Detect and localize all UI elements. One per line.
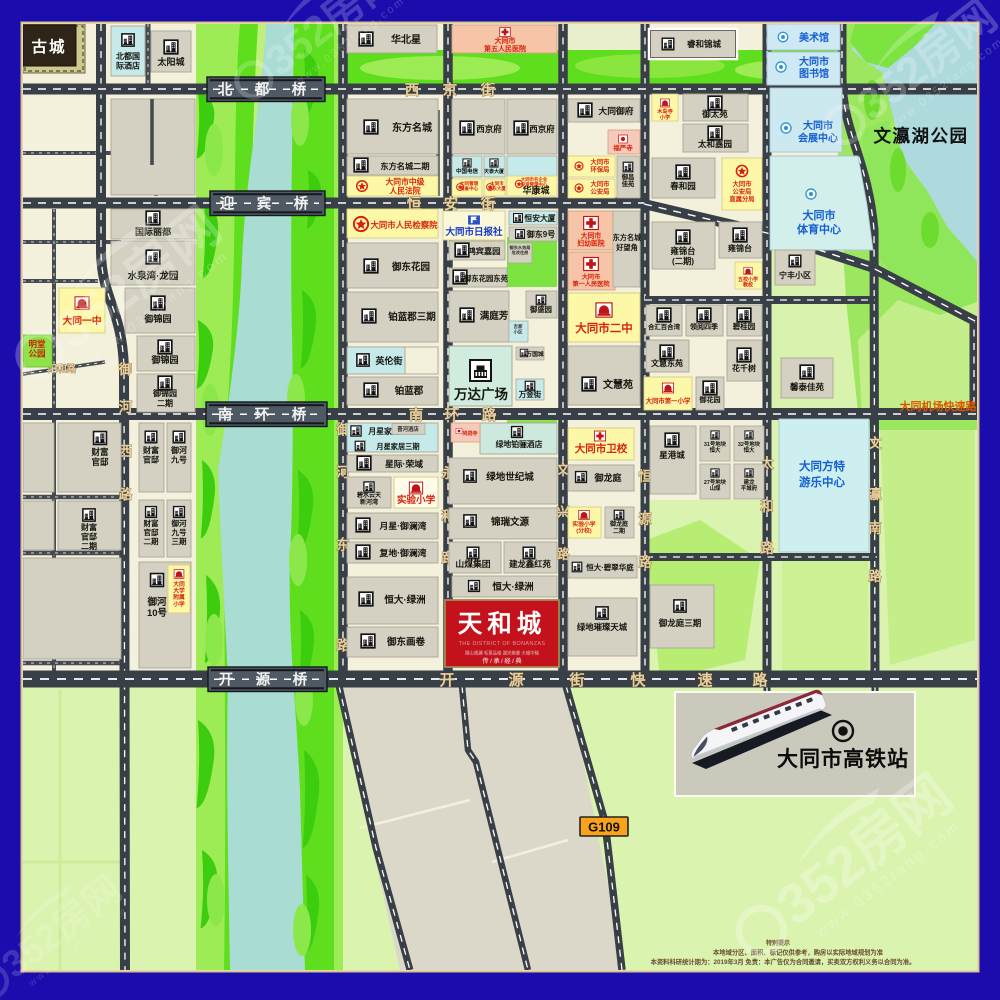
svg-text:绿地璀璨天城: 绿地璀璨天城 (577, 622, 628, 632)
svg-text:路: 路 (638, 554, 652, 570)
svg-text:二期: 二期 (144, 536, 159, 546)
svg-text:开: 开 (219, 671, 234, 688)
svg-text:文慧苑: 文慧苑 (603, 378, 633, 391)
svg-text:大同机场快速路: 大同机场快速路 (900, 399, 978, 413)
svg-text:东方名城: 东方名城 (613, 233, 643, 242)
svg-text:文瀛湖公园: 文瀛湖公园 (874, 126, 969, 146)
svg-text:大同市: 大同市 (591, 157, 611, 166)
svg-text:第五人民医院: 第五人民医院 (484, 44, 526, 53)
svg-text:公园: 公园 (28, 349, 45, 359)
svg-text:大同市: 大同市 (733, 179, 753, 188)
svg-text:西京府: 西京府 (529, 124, 555, 134)
svg-text:御河: 御河 (146, 596, 167, 608)
svg-text:妇幼医院: 妇幼医院 (576, 239, 604, 248)
svg-text:街: 街 (568, 671, 584, 689)
svg-text:二期: 二期 (157, 398, 173, 408)
svg-text:御河: 御河 (170, 445, 187, 455)
svg-text:御锦园: 御锦园 (150, 354, 178, 365)
svg-text:大同市: 大同市 (581, 231, 602, 240)
svg-text:西: 西 (405, 82, 420, 99)
svg-text:京: 京 (443, 81, 458, 99)
svg-text:和: 和 (760, 499, 774, 514)
svg-text:御锦园: 御锦园 (152, 388, 177, 398)
svg-text:恒大·绿洲: 恒大·绿洲 (384, 594, 425, 606)
svg-text:御龙庭: 御龙庭 (609, 520, 628, 528)
svg-text:本地域分区、面积、标记仅供参考，购房以实际地域规划为准: 本地域分区、面积、标记仅供参考，购房以实际地域规划为准 (712, 948, 884, 957)
svg-text:碧桂园: 碧桂园 (732, 321, 756, 331)
svg-text:阔山观澜 毛革品格 湖光美景 大城中轴: 阔山观澜 毛革品格 湖光美景 大城中轴 (465, 650, 540, 657)
svg-text:御盛园: 御盛园 (529, 305, 552, 314)
svg-text:官邸: 官邸 (81, 532, 97, 542)
svg-text:建龙: 建龙 (743, 478, 755, 486)
svg-text:开: 开 (439, 672, 454, 689)
svg-text:雍锦台: 雍锦台 (671, 246, 696, 256)
svg-text:华北星: 华北星 (391, 33, 421, 46)
svg-text:宁丰小区: 宁丰小区 (779, 270, 811, 280)
svg-text:源: 源 (638, 511, 652, 527)
svg-text:御龙庭: 御龙庭 (593, 472, 622, 483)
svg-text:迎: 迎 (220, 194, 235, 212)
svg-text:月星家居三期: 月星家居三期 (375, 442, 419, 451)
svg-text:官邸: 官邸 (91, 457, 109, 467)
svg-text:月星·御澜湾: 月星·御澜湾 (379, 520, 427, 531)
svg-text:大同市中级: 大同市中级 (386, 177, 425, 187)
svg-text:合汇百合湾: 合汇百合湾 (647, 322, 681, 331)
svg-text:花千树: 花千树 (732, 363, 756, 373)
svg-text:际酒店: 际酒店 (116, 61, 140, 71)
svg-text:大同市: 大同市 (591, 179, 611, 188)
svg-text:明堂: 明堂 (28, 339, 46, 349)
svg-text:速: 速 (697, 671, 712, 689)
svg-text:大同市日报社: 大同市日报社 (445, 226, 503, 238)
svg-text:天泰大厦: 天泰大厦 (484, 168, 505, 175)
svg-text:御东画卷: 御东画卷 (386, 636, 426, 648)
svg-text:31号地块: 31号地块 (704, 440, 727, 448)
svg-text:二期: 二期 (613, 527, 625, 535)
svg-text:附属: 附属 (173, 593, 185, 601)
svg-text:佳苑: 佳苑 (622, 179, 635, 188)
svg-text:星际·荣域: 星际·荣域 (385, 458, 423, 469)
svg-text:大同市卫校: 大同市卫校 (575, 442, 628, 455)
svg-text:山煤集团: 山煤集团 (455, 558, 490, 569)
svg-text:万国城: 万国城 (525, 350, 544, 358)
svg-text:G109: G109 (588, 820, 620, 835)
svg-text:华康城: 华康城 (522, 185, 549, 196)
svg-text:32号地块: 32号地块 (738, 440, 761, 448)
svg-text:路: 路 (760, 540, 774, 556)
svg-text:恒大·碧翠华庭: 恒大·碧翠华庭 (586, 562, 634, 572)
svg-text:环: 环 (445, 407, 460, 424)
svg-text:环: 环 (255, 406, 270, 423)
svg-text:铂蓝郡三期: 铂蓝郡三期 (388, 311, 436, 323)
svg-text:大同市: 大同市 (803, 208, 836, 222)
svg-text:御东花园: 御东花园 (391, 261, 430, 273)
svg-text:恒大: 恒大 (709, 446, 721, 454)
svg-text:官邸: 官邸 (144, 527, 159, 537)
svg-text:太和嘉园: 太和嘉园 (697, 139, 732, 149)
svg-text:路: 路 (752, 671, 768, 689)
svg-text:桥: 桥 (294, 194, 309, 212)
svg-text:直属分局: 直属分局 (729, 194, 754, 203)
svg-text:大同市: 大同市 (582, 273, 601, 281)
svg-text:御河: 御河 (171, 518, 187, 528)
svg-text:河: 河 (119, 399, 133, 415)
svg-text:实验小学: 实验小学 (397, 494, 436, 506)
svg-text:雍锦台: 雍锦台 (728, 243, 752, 253)
svg-text:大同方特: 大同方特 (799, 459, 845, 473)
svg-text:安: 安 (444, 195, 459, 213)
svg-text:北都国: 北都国 (116, 51, 140, 61)
svg-text:大同市: 大同市 (495, 36, 516, 45)
svg-text:桥: 桥 (292, 405, 307, 423)
svg-text:危改住房: 危改住房 (511, 249, 529, 256)
svg-text:大同市人民检察院: 大同市人民检察院 (371, 220, 439, 230)
svg-text:九号: 九号 (171, 527, 187, 537)
svg-text:公安局: 公安局 (591, 186, 610, 195)
svg-text:大同市二中: 大同市二中 (575, 321, 633, 335)
svg-text:财富: 财富 (90, 447, 109, 457)
svg-text:晋河酒店: 晋河酒店 (397, 425, 419, 433)
svg-text:官邸: 官邸 (143, 455, 159, 465)
svg-text:第一人民医院: 第一人民医院 (571, 280, 610, 288)
svg-text:复地·御澜湾: 复地·御澜湾 (379, 547, 427, 558)
svg-text:27号地块: 27号地块 (704, 478, 727, 486)
svg-text:财富: 财富 (143, 518, 159, 528)
svg-text:东方名城: 东方名城 (392, 121, 432, 134)
svg-text:源: 源 (256, 670, 271, 688)
svg-text:教校: 教校 (742, 282, 754, 289)
svg-text:源: 源 (508, 671, 523, 689)
svg-text:10号: 10号 (147, 608, 168, 619)
svg-text:财东大厦: 财东大厦 (487, 185, 506, 192)
svg-text:体育中心: 体育中心 (797, 222, 841, 236)
svg-text:南: 南 (409, 406, 424, 424)
svg-text:南: 南 (218, 405, 233, 423)
svg-text:铂蓝郡: 铂蓝郡 (395, 385, 424, 397)
svg-text:御东9号: 御东9号 (526, 229, 555, 239)
svg-text:福严寺: 福严寺 (612, 143, 633, 152)
svg-text:小学: 小学 (660, 113, 670, 121)
svg-text:二期: 二期 (81, 541, 97, 551)
svg-text:三期: 三期 (172, 536, 187, 546)
svg-text:御龙庭三期: 御龙庭三期 (658, 618, 702, 628)
svg-text:(二期): (二期) (672, 256, 694, 266)
svg-text:财富: 财富 (142, 445, 159, 455)
svg-text:碧水云天: 碧水云天 (356, 491, 381, 499)
svg-text:北: 北 (218, 81, 233, 98)
svg-text:古城: 古城 (31, 37, 66, 56)
svg-text:(分校): (分校) (576, 527, 592, 535)
svg-text:大同市: 大同市 (799, 55, 829, 68)
svg-text:御花园: 御花园 (699, 395, 721, 404)
svg-text:御昌: 御昌 (621, 172, 635, 181)
svg-text:御: 御 (118, 361, 133, 377)
svg-text:公安局: 公安局 (733, 187, 752, 196)
svg-text:万金街: 万金街 (518, 389, 542, 399)
svg-text:瀛: 瀛 (868, 486, 882, 502)
svg-text:天和城: 天和城 (458, 610, 547, 638)
svg-text:实验小学: 实验小学 (572, 520, 595, 528)
svg-text:山煤: 山煤 (710, 484, 721, 492)
svg-text:南: 南 (868, 520, 882, 536)
svg-text:THE DISTRICT OF BONANZAS: THE DISTRICT OF BONANZAS (459, 641, 546, 647)
svg-text:恒大·绿洲: 恒大·绿洲 (492, 581, 533, 593)
svg-text:大同御府: 大同御府 (598, 105, 633, 116)
svg-text:恒安大厦: 恒安大厦 (524, 213, 555, 223)
svg-text:大同市高铁站: 大同市高铁站 (777, 747, 909, 771)
svg-text:大同: 大同 (173, 580, 185, 588)
svg-text:鸿宾嘉园: 鸿宾嘉园 (468, 246, 501, 256)
svg-text:绿地世纪城: 绿地世纪城 (486, 471, 534, 483)
svg-text:平城府: 平城府 (741, 484, 758, 492)
svg-text:街: 街 (480, 195, 496, 213)
svg-text:宾: 宾 (257, 194, 272, 212)
svg-text:英伦街: 英伦街 (374, 355, 402, 366)
svg-text:满庭芳: 满庭芳 (480, 310, 509, 322)
svg-text:图书馆: 图书馆 (799, 67, 829, 80)
svg-text:新河湾: 新河湾 (360, 498, 378, 506)
svg-text:锦瑞文源: 锦瑞文源 (491, 516, 530, 528)
svg-text:御东花园东苑: 御东花园东苑 (463, 274, 508, 283)
svg-text:好望角: 好望角 (615, 243, 638, 252)
svg-text:财富: 财富 (80, 522, 97, 532)
svg-text:东方名城二期: 东方名城二期 (380, 161, 429, 171)
svg-text:环保局: 环保局 (591, 164, 610, 173)
svg-text:大学: 大学 (173, 587, 185, 595)
svg-text:万达广场: 万达广场 (453, 386, 508, 402)
svg-text:调查中心: 调查中心 (460, 185, 479, 192)
svg-text:小区: 小区 (514, 329, 523, 336)
svg-text:小学: 小学 (172, 600, 185, 608)
svg-text:馨泰佳苑: 馨泰佳苑 (789, 382, 825, 392)
svg-text:西京府: 西京府 (476, 124, 502, 134)
svg-text:太阳城: 太阳城 (156, 56, 184, 67)
svg-text:恒大: 恒大 (743, 446, 755, 454)
svg-text:建龙鑫红苑: 建龙鑫红苑 (508, 559, 551, 569)
svg-text:美术馆: 美术馆 (799, 31, 829, 44)
svg-text:睿和锦城: 睿和锦城 (687, 39, 722, 49)
svg-text:中国电信: 中国电信 (456, 167, 479, 175)
svg-text:鸠鸽寺: 鸠鸽寺 (462, 430, 477, 437)
svg-text:木岛寺: 木岛寺 (656, 107, 673, 115)
svg-text:快: 快 (630, 671, 646, 689)
svg-text:文: 文 (868, 435, 882, 451)
svg-text:文慧东苑: 文慧东苑 (651, 358, 683, 368)
svg-text:路: 路 (868, 568, 882, 584)
svg-text:九号: 九号 (170, 455, 187, 465)
svg-text:御太苑: 御太苑 (701, 109, 728, 119)
svg-text:星港城: 星港城 (659, 450, 685, 460)
svg-text:传 / 承 / 经 / 典: 传 / 承 / 经 / 典 (481, 657, 521, 665)
svg-text:领阅四季: 领阅四季 (690, 322, 719, 331)
svg-text:游乐中心: 游乐中心 (799, 475, 845, 489)
svg-text:路: 路 (482, 406, 497, 424)
svg-text:春和园: 春和园 (669, 181, 696, 191)
svg-text:街: 街 (480, 81, 496, 99)
svg-text:桥: 桥 (293, 670, 308, 688)
svg-text:人民法院: 人民法院 (389, 186, 420, 196)
svg-text:大同市第一小学: 大同市第一小学 (646, 396, 691, 405)
svg-text:本资料科研统计期为：2019年3月 免责：本广告仅为合同邀: 本资料科研统计期为：2019年3月 免责：本广告仅为合同邀请，买卖双方权利义务以… (650, 957, 916, 966)
svg-text:绿地铂骊酒店: 绿地铂骊酒店 (496, 439, 543, 449)
